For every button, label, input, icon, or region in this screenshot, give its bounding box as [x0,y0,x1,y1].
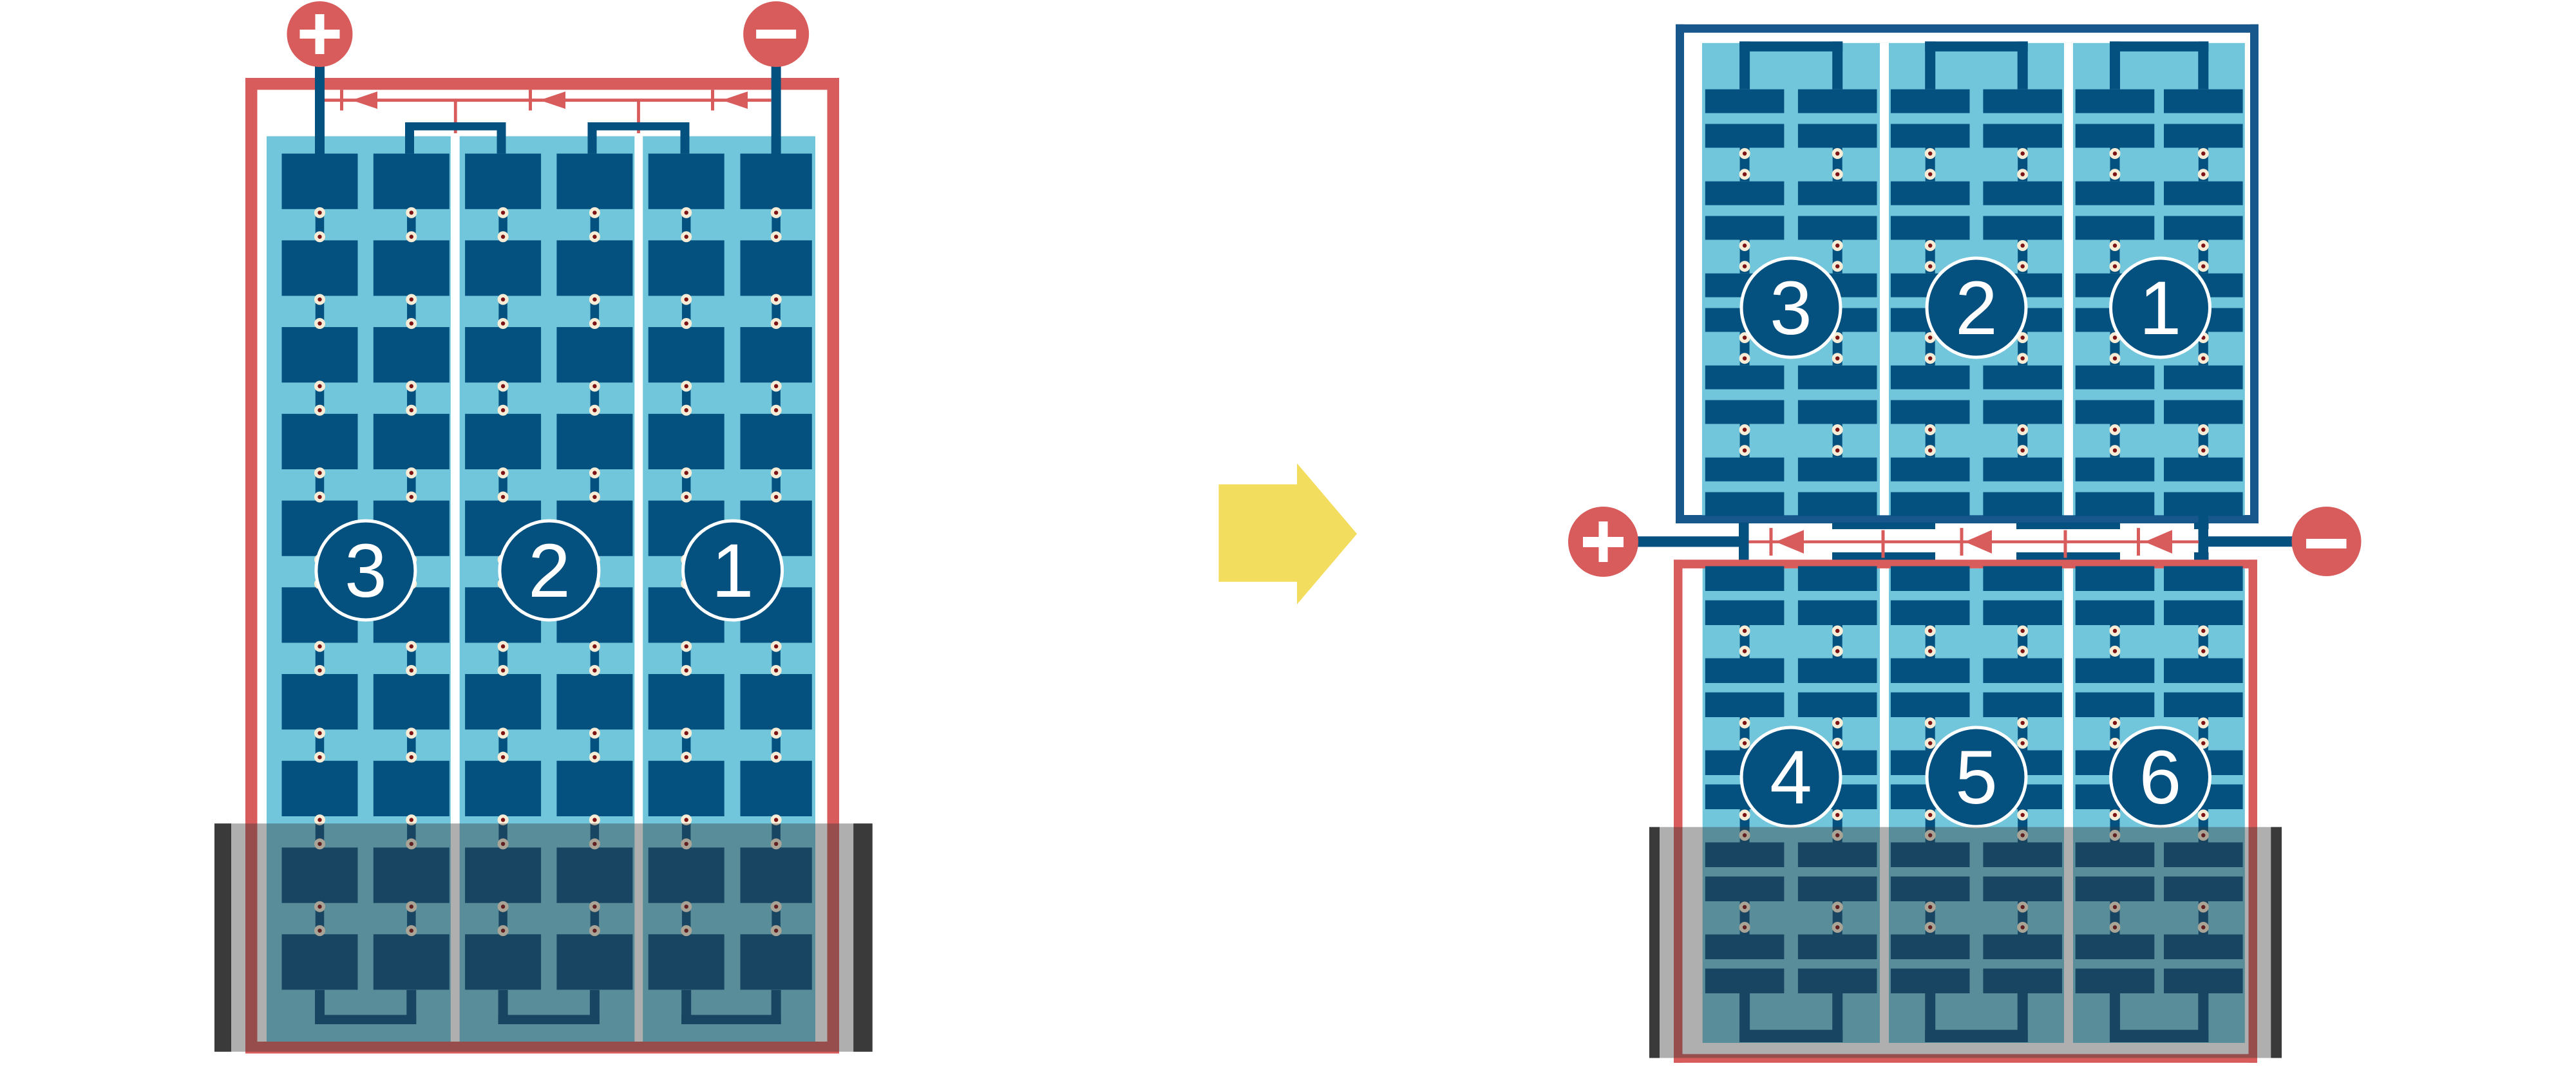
svg-text:2: 2 [1955,266,1998,351]
svg-text:4: 4 [1770,735,1812,820]
svg-text:1: 1 [2139,266,2182,351]
svg-text:1: 1 [712,529,754,614]
svg-text:3: 3 [1770,266,1812,351]
svg-text:3: 3 [345,529,387,614]
svg-text:2: 2 [528,529,571,614]
svg-text:5: 5 [1955,735,1998,820]
svg-text:6: 6 [2139,735,2182,820]
